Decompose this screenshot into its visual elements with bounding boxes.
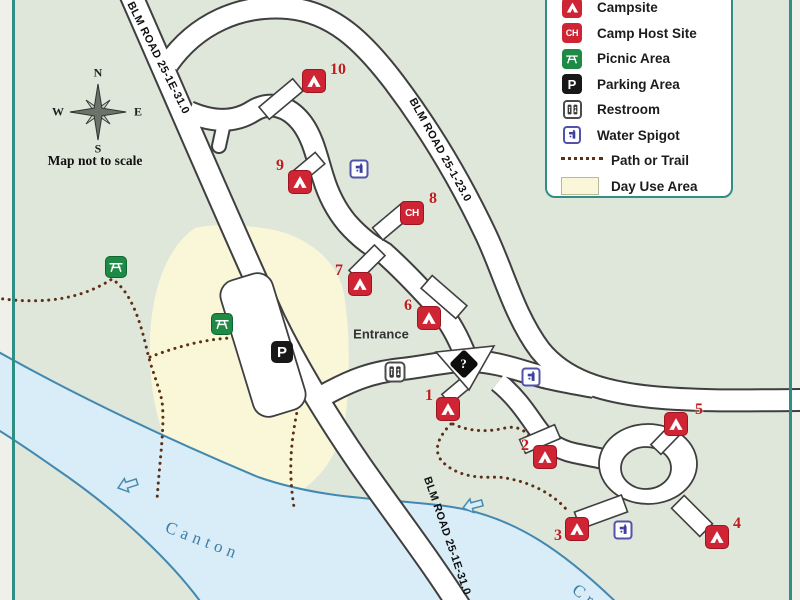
site-number-5: 5 [695,401,703,419]
legend-row-trail: Path or Trail [561,148,731,174]
camp-host-marker-8: CH [400,201,424,225]
campsite-marker-3 [565,517,589,541]
site-number-4: 4 [733,515,741,533]
campsite-marker-10 [302,69,326,93]
map-border-left [12,0,15,600]
site-number-2: 2 [521,437,529,455]
compass-rose [70,84,126,140]
tent-icon [290,172,310,192]
compass-w: W [52,105,64,120]
legend-label: Water Spigot [597,128,680,143]
tent-icon [535,447,555,467]
water-spigot-icon [617,524,630,537]
site-number-8: 8 [429,190,437,208]
legend-row-restroom: Restroom [561,97,731,123]
picnic-icon [562,49,582,69]
legend-label: Restroom [597,102,660,117]
picnic-table-icon [213,315,231,333]
legend-label: Parking Area [597,77,680,92]
legend-label: Camp Host Site [597,26,697,41]
legend-row-camp-host: CH Camp Host Site [561,21,731,47]
campsite-icon [562,0,582,18]
legend-row-picnic: Picnic Area [561,46,731,72]
water-spigot-marker [350,160,369,179]
parking-marker: P [271,341,293,363]
water-spigot-icon [563,126,581,144]
compass-n: N [94,66,103,81]
legend-label: Campsite [597,0,658,15]
tent-icon [350,274,370,294]
tent-icon [567,519,587,539]
site-number-3: 3 [554,527,562,545]
tent-icon [666,414,686,434]
water-spigot-marker [614,521,633,540]
campsite-marker-1 [436,397,460,421]
tent-icon [438,399,458,419]
campsite-marker-2 [533,445,557,469]
legend-row-water-spigot: Water Spigot [561,123,731,149]
loop-island [621,447,671,489]
legend-row-campsite: Campsite [561,0,731,21]
picnic-table-icon [107,258,125,276]
picnic-area-marker [105,256,127,278]
map-border-right [789,0,792,600]
site-number-6: 6 [404,297,412,315]
restroom-icon [563,100,582,119]
legend-row-day-use: Day Use Area [561,174,731,200]
question-mark-icon: ? [461,356,468,372]
camp-host-icon: CH [562,23,582,43]
tent-icon [419,308,439,328]
legend: Campsite CH Camp Host Site Picnic Area P… [545,0,733,198]
trail-swatch [561,157,603,164]
campsite-marker-5 [664,412,688,436]
site-number-9: 9 [276,157,284,175]
campground-map: BLM ROAD 25-1E-31.0 BLM ROAD 25-1-23.0 B… [0,0,800,600]
restroom-marker [385,362,406,383]
campsite-marker-9 [288,170,312,194]
water-spigot-icon [353,163,366,176]
restroom-icon [388,365,403,380]
tent-icon [707,527,727,547]
tent-icon [304,71,324,91]
compass-e: E [134,105,142,120]
legend-label: Path or Trail [611,153,689,168]
scale-note: Map not to scale [48,153,143,169]
picnic-area-marker [211,313,233,335]
water-spigot-marker [522,368,541,387]
water-spigot-icon [525,371,538,384]
site-number-7: 7 [335,262,343,280]
legend-label: Picnic Area [597,51,670,66]
legend-label: Day Use Area [611,179,698,194]
campsite-marker-6 [417,306,441,330]
site-number-1: 1 [425,387,433,405]
entrance-label: Entrance [353,327,409,342]
parking-icon: P [562,74,582,94]
campsite-marker-7 [348,272,372,296]
site-number-10: 10 [330,61,346,79]
day-use-swatch [561,177,599,195]
campsite-marker-4 [705,525,729,549]
legend-row-parking: P Parking Area [561,72,731,98]
